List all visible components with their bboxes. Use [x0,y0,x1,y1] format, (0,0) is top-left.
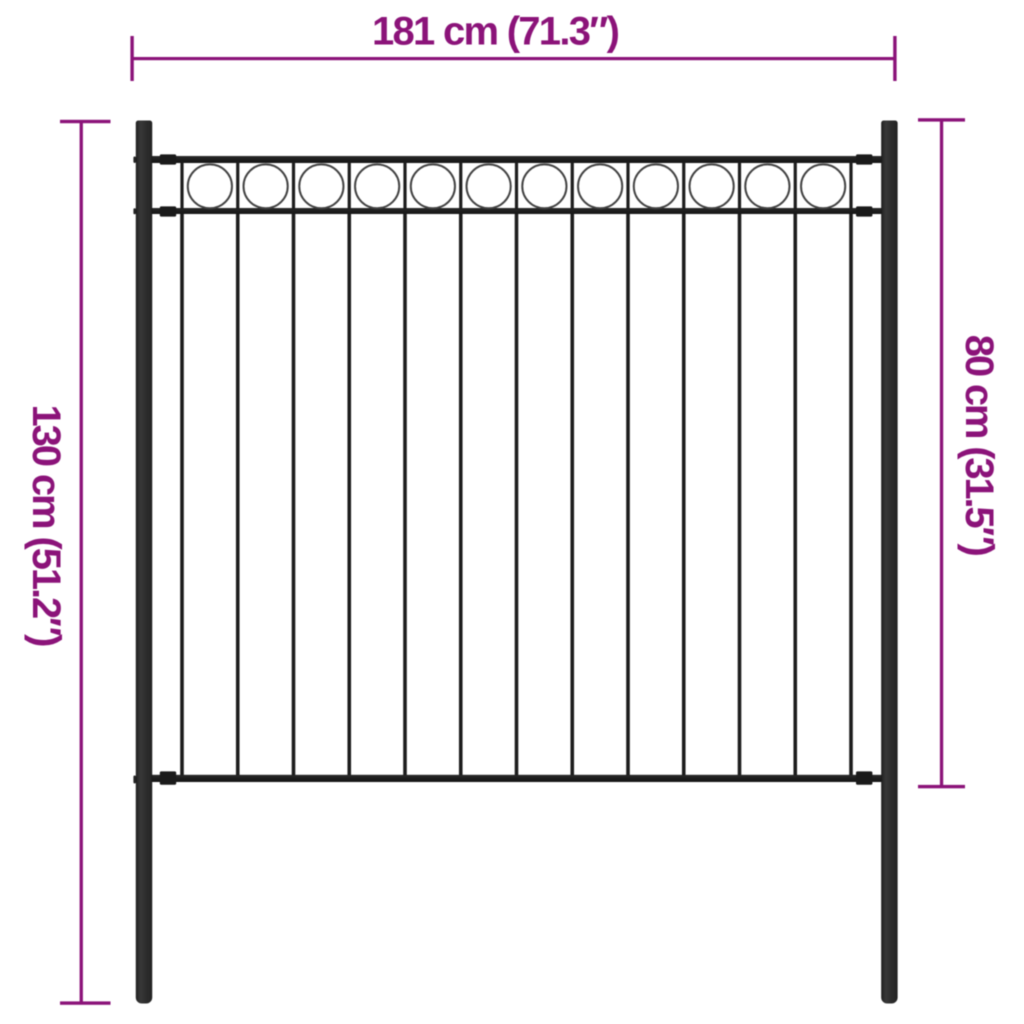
svg-text:80 cm (31.5″): 80 cm (31.5″) [957,335,1001,557]
svg-text:130 cm (51.2″): 130 cm (51.2″) [24,405,68,648]
svg-text:181 cm (71.3″): 181 cm (71.3″) [372,10,620,54]
